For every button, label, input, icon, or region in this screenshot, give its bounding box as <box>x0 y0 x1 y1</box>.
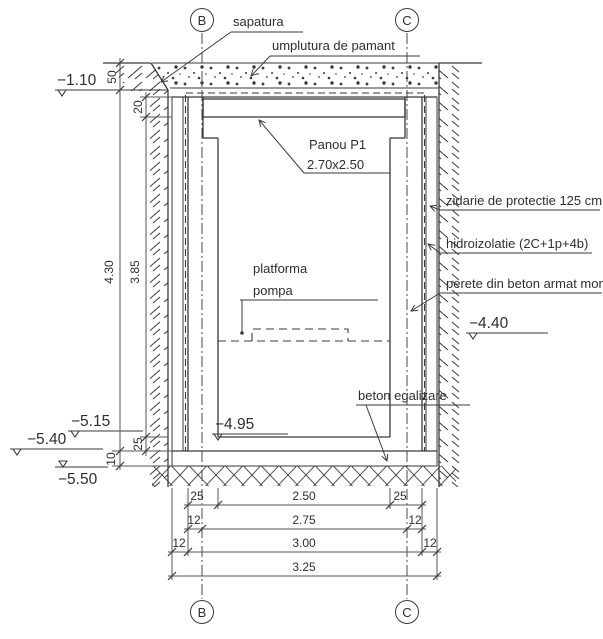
elevation-left-2-value: −5.40 <box>27 431 67 448</box>
callout-panou: Panou P1 2.70x2.50 <box>259 120 390 173</box>
dim-row3-right: 12 <box>423 536 437 550</box>
dim-row2-right: 12 <box>408 513 422 527</box>
elevation-floor-value: −4.95 <box>215 416 254 433</box>
fill-stipple <box>154 64 439 87</box>
elevation-ground-right: −4.40 <box>466 315 548 339</box>
elevation-left-1-value: −5.15 <box>71 413 110 430</box>
axis-c-top-label: C <box>402 13 411 28</box>
section-svg: B C B C <box>0 0 603 639</box>
panou-p1-band <box>203 99 405 117</box>
dim-fill-50: 50 <box>105 70 119 84</box>
axis-b-bottom-label: B <box>198 605 207 620</box>
zidarie-band-left <box>172 97 183 451</box>
dim-row3-left: 12 <box>172 536 186 550</box>
label-perete: perete din beton armat monolit <box>446 276 603 291</box>
dim-egalizare-10: 10 <box>104 452 118 466</box>
leader-dot <box>240 331 244 335</box>
label-umplutura: umplutura de pamant <box>272 38 395 53</box>
earth-below-slab <box>152 466 456 486</box>
axis-marker-c-bottom: C <box>396 601 419 624</box>
platform-pompa: platforma pompa <box>218 261 390 341</box>
elevation-left-2: −5.40 <box>10 431 103 455</box>
dim-panou-20: 20 <box>131 100 145 114</box>
label-pompa: pompa <box>253 283 294 298</box>
label-panou-name: Panou P1 <box>309 137 366 152</box>
elevation-left-3: −5.50 <box>55 461 108 488</box>
callout-hidroizolatie: hidroizolatie (2C+1p+4b) <box>428 236 592 253</box>
dim-wall-430: 4.30 <box>102 260 116 284</box>
label-beton-egalizare: beton egalizare <box>358 388 447 403</box>
beton-egalizare-band <box>172 451 437 466</box>
elevation-left-3-value: −5.50 <box>58 471 98 488</box>
bottom-dimension-chains: 25 2.50 25 12 2.75 12 12 3.00 12 3.25 <box>168 488 441 580</box>
label-hidroizolatie: hidroizolatie (2C+1p+4b) <box>446 236 588 251</box>
elevation-ground-right-value: −4.40 <box>469 315 509 332</box>
callout-zidarie: zidarie de protectie 125 cm <box>430 193 602 210</box>
axis-marker-b-top: B <box>191 9 214 32</box>
dim-total: 3.25 <box>292 560 316 574</box>
dim-row3-mid: 3.00 <box>292 536 316 550</box>
dim-radier-25: 25 <box>131 437 145 451</box>
elevation-wall-top-value: −1.10 <box>57 72 97 89</box>
dim-row2-mid: 2.75 <box>292 513 316 527</box>
axis-c-bottom-label: C <box>402 605 411 620</box>
level-mark-icon <box>58 90 66 96</box>
construction-section-drawing: B C B C <box>0 0 603 639</box>
level-mark-icon <box>469 333 477 339</box>
level-mark-icon <box>13 449 21 455</box>
fill-band <box>152 63 439 88</box>
axis-marker-b-bottom: B <box>191 601 214 624</box>
earth-hatch-strip-left <box>150 90 168 487</box>
label-zidarie: zidarie de protectie 125 cm <box>446 193 602 208</box>
floor-and-slab <box>152 437 456 486</box>
axis-b-top-label: B <box>198 13 207 28</box>
dim-row1-right: 25 <box>393 489 407 503</box>
axis-marker-c-top: C <box>396 9 419 32</box>
level-mark-icon <box>71 431 79 437</box>
label-platforma: platforma <box>253 261 308 276</box>
level-mark-icon <box>59 461 67 467</box>
dim-row2-left: 12 <box>187 513 201 527</box>
label-panou-size: 2.70x2.50 <box>307 157 364 172</box>
elevation-left-1: −5.15 <box>68 413 143 437</box>
dim-interior-385: 3.85 <box>128 260 142 284</box>
dim-row1-left: 25 <box>190 489 204 503</box>
label-sapatura: sapatura <box>233 14 284 29</box>
dim-row1-mid: 2.50 <box>292 489 316 503</box>
